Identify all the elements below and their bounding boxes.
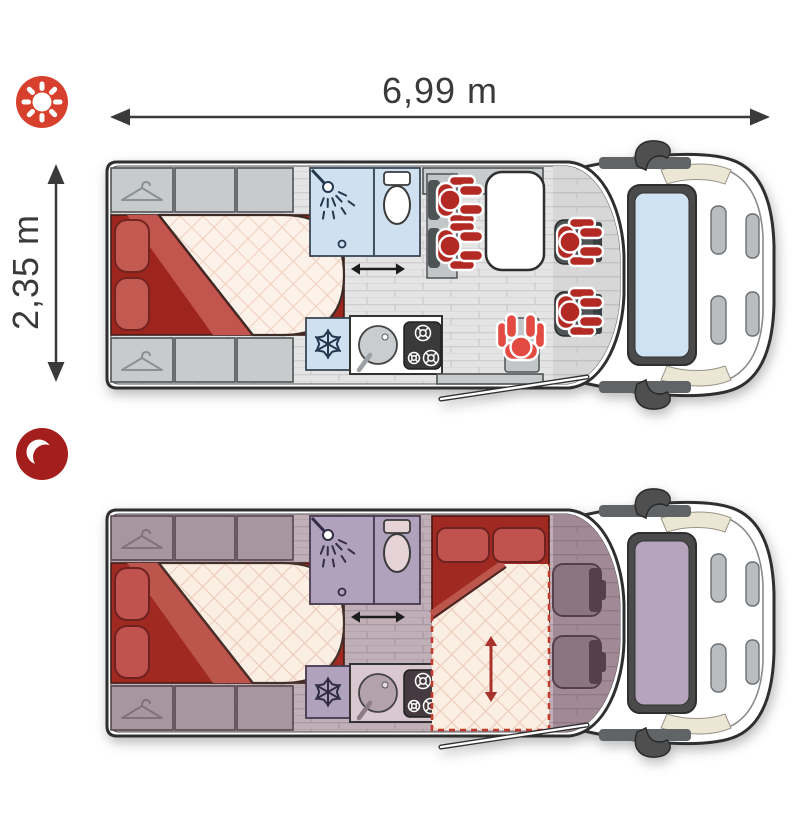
sun-icon	[14, 74, 70, 130]
headlight	[746, 640, 759, 684]
shower-icon	[323, 530, 333, 540]
headlight	[746, 214, 759, 258]
sink	[359, 326, 397, 364]
kitchen	[306, 664, 442, 722]
headlight	[746, 292, 759, 336]
floorplan-page: 6,99 m 2,35 m	[0, 0, 800, 840]
double-bed	[111, 215, 344, 335]
headlight	[711, 206, 726, 254]
width-arrow	[40, 158, 72, 394]
headlight	[711, 554, 726, 602]
pillow	[115, 220, 149, 272]
moon-icon	[14, 426, 70, 482]
toilet-icon	[384, 534, 410, 572]
headlight	[711, 296, 726, 344]
shower-icon	[323, 182, 333, 192]
pillow	[437, 528, 489, 562]
double-bed	[111, 563, 344, 683]
dinette-table	[486, 172, 544, 270]
pillow	[115, 278, 149, 330]
kitchen	[306, 316, 442, 374]
shower	[310, 516, 374, 604]
headlight	[746, 562, 759, 606]
floorplan-day	[101, 136, 781, 426]
floorplan-night	[101, 484, 781, 774]
toilet-icon	[384, 186, 410, 224]
headlight	[711, 644, 726, 692]
converted-dinette-bed	[432, 516, 549, 730]
pillow	[115, 568, 149, 620]
width-label: 2,35 m	[8, 207, 44, 337]
length-arrow	[100, 106, 780, 128]
pillow	[493, 528, 545, 562]
shower	[310, 168, 374, 256]
bathroom	[310, 516, 420, 604]
sink	[359, 674, 397, 712]
bathroom	[310, 168, 420, 256]
pillow	[115, 626, 149, 678]
